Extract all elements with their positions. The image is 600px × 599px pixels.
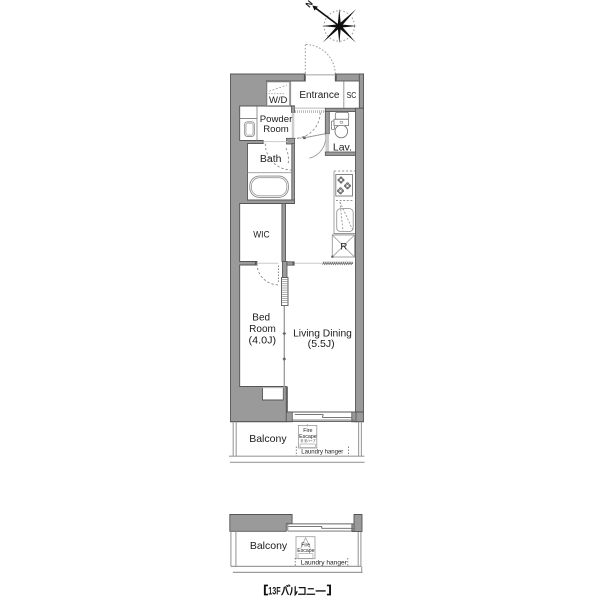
svg-text:Room: Room: [263, 124, 289, 135]
svg-text:Escape: Escape: [299, 434, 317, 440]
svg-text:SC: SC: [347, 91, 357, 100]
svg-text:WIC: WIC: [253, 228, 270, 239]
svg-text:Balcony: Balcony: [249, 433, 287, 445]
svg-text:Lav.: Lav.: [333, 142, 352, 154]
svg-text:Balcony: Balcony: [250, 540, 288, 552]
svg-text:Laundry hanger: Laundry hanger: [301, 560, 348, 567]
svg-text:(5.5J): (5.5J): [308, 338, 335, 350]
svg-text:Room: Room: [249, 324, 276, 335]
svg-text:W/D: W/D: [269, 95, 288, 106]
svg-text:Bath: Bath: [260, 153, 282, 165]
svg-text:(4.0J): (4.0J): [249, 336, 277, 347]
svg-text:Laundry hanger: Laundry hanger: [301, 450, 343, 456]
svg-text:Bed: Bed: [252, 312, 270, 323]
svg-text:R: R: [340, 242, 347, 253]
svg-text:Escape: Escape: [297, 548, 314, 554]
svg-text:Entrance: Entrance: [299, 90, 339, 101]
svg-text:13F: 13F: [268, 585, 281, 597]
